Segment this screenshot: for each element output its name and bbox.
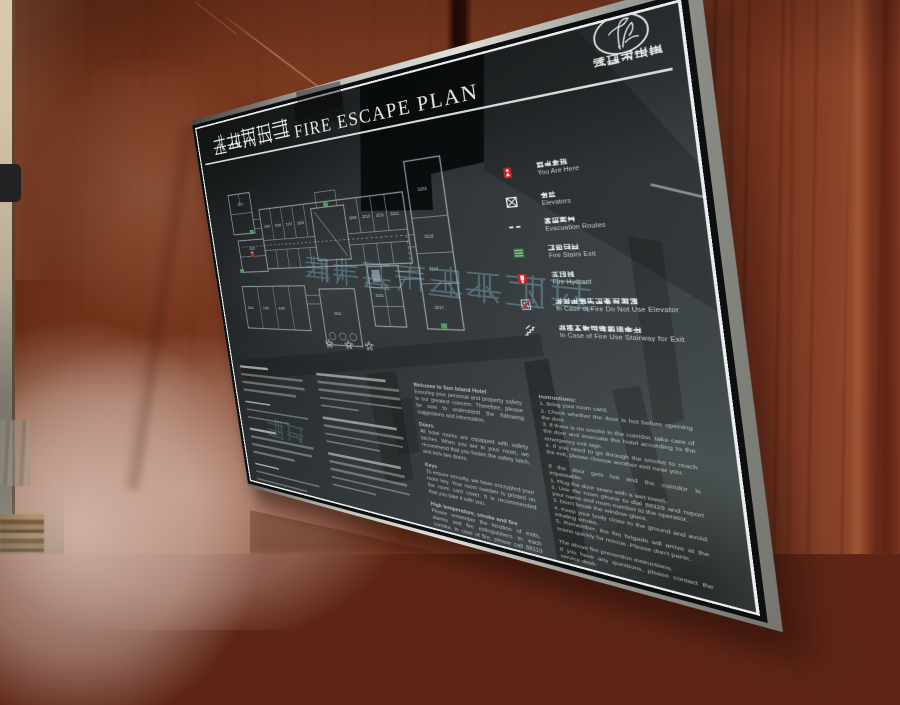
svg-text:3210: 3210 [362, 213, 372, 220]
svg-text:3104: 3104 [247, 305, 254, 310]
svg-text:3106: 3106 [278, 306, 286, 311]
svg-text:3206: 3206 [274, 222, 282, 228]
svg-text:3211: 3211 [376, 211, 386, 218]
svg-text:3209: 3209 [348, 214, 357, 221]
svg-text:3218: 3218 [424, 233, 435, 240]
svg-text:3105: 3105 [262, 305, 269, 310]
svg-text:3205: 3205 [264, 223, 271, 229]
svg-text:3203: 3203 [417, 185, 428, 193]
svg-text:3212: 3212 [390, 210, 400, 217]
svg-text:3202: 3202 [249, 246, 256, 251]
svg-text:3201: 3201 [237, 201, 244, 207]
svg-text:3207: 3207 [285, 221, 293, 227]
svg-text:3208: 3208 [297, 220, 305, 226]
